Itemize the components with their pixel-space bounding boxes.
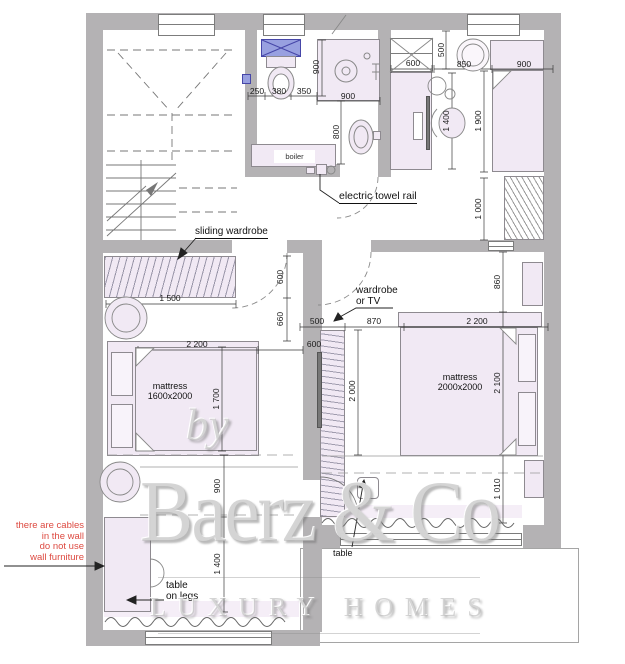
bedroom-extras — [100, 297, 164, 587]
dim-shower-depth: 900 — [311, 60, 321, 74]
shower-knob — [364, 53, 370, 59]
label-mattress-left: mattress 1600x2000 — [130, 381, 210, 401]
stair-cut-lines — [107, 173, 176, 236]
dim-gap-870: 870 — [367, 316, 381, 326]
watermark-rule-top — [158, 577, 480, 578]
label-table-on-legs: table on legs — [166, 580, 198, 602]
lower-door-arc — [320, 477, 358, 515]
shower-drain — [335, 60, 357, 82]
chair-semicircle — [150, 559, 164, 587]
pouf-2 — [100, 462, 140, 502]
dim-gap-600: 600 — [307, 339, 321, 349]
stairs — [106, 50, 237, 240]
watermark-rule-bottom — [158, 633, 480, 634]
linework — [0, 0, 625, 664]
table-arrow — [127, 596, 136, 604]
dim-single-bed-1900: 1 900 — [473, 110, 483, 131]
curtain-bedroom2 — [322, 519, 514, 528]
dim-bed2-2200: 2 200 — [466, 316, 487, 326]
washer-cross — [262, 40, 300, 56]
curtains — [105, 519, 514, 627]
curtain-bottom-room — [105, 618, 285, 627]
dim-wardrobe-1500: 1 500 — [159, 293, 180, 303]
dim-bed1-2200: 2 200 — [186, 339, 207, 349]
ceiling-break-lines — [107, 455, 543, 515]
dim-gap-1010: 1 010 — [492, 478, 502, 499]
dim-wc-380: 380 — [272, 86, 286, 96]
desk-lamp — [428, 77, 446, 95]
dim-gap-660: 660 — [275, 312, 285, 326]
shower-mixer — [372, 64, 380, 80]
stair-treads — [106, 160, 176, 240]
dim-single-bed-900: 900 — [517, 59, 531, 69]
dim-gap-850: 850 — [457, 59, 471, 69]
bathroom-fixture-lines — [262, 40, 380, 174]
break-dashed — [107, 455, 543, 515]
ceiling-slope-dashes — [107, 50, 237, 212]
label-towel-rail: electric towel rail — [339, 191, 417, 203]
dim-corr-2000: 2 000 — [347, 380, 357, 401]
dim-wc-350: 350 — [297, 86, 311, 96]
dim-desk-1400: 1 400 — [441, 110, 451, 131]
top-wall-hatch-mark — [332, 15, 346, 34]
note-arrow — [95, 562, 104, 570]
dim-wardrobe-600: 600 — [275, 270, 285, 284]
dim-top-500: 500 — [436, 43, 446, 57]
label-wardrobe-or-tv: wardrobe or TV — [356, 285, 398, 307]
small-table-arrow — [359, 480, 367, 489]
break-solid — [140, 456, 543, 467]
dim-tv-500: 500 — [310, 316, 324, 326]
dim-wc-250: 250 — [250, 86, 264, 96]
stair-direction-arrow — [146, 182, 158, 196]
dim-low-1400: 1 400 — [212, 553, 222, 574]
dim-gap-860: 860 — [492, 275, 502, 289]
label-mattress-right: mattress 2000x2000 — [420, 372, 500, 392]
dim-entry-1000: 1 000 — [473, 198, 483, 219]
desk-chair-back — [431, 109, 437, 137]
pouf-1 — [105, 297, 147, 339]
floor-plan: boiler — [0, 0, 625, 664]
cable-warning-note: there are cables in the wall do not use … — [4, 521, 84, 564]
dim-sink-800: 800 — [331, 125, 341, 139]
sink-basin — [349, 120, 373, 154]
label-small-table: table — [333, 548, 353, 558]
dim-shower-width: 900 — [341, 91, 355, 101]
towel-rail-knob — [327, 166, 335, 174]
label-sliding-wardrobe: sliding wardrobe — [195, 226, 268, 237]
dim-bed1-1700: 1 700 — [211, 388, 221, 409]
dim-closet-600: 600 — [406, 58, 420, 68]
dim-low-900: 900 — [212, 479, 222, 493]
